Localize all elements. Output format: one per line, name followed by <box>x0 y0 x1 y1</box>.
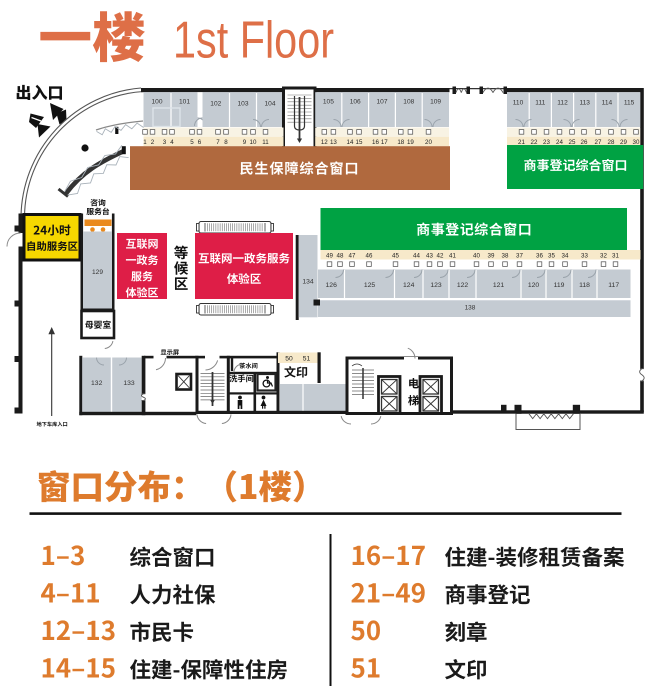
svg-text:110: 110 <box>513 100 524 107</box>
svg-text:14: 14 <box>347 139 354 146</box>
svg-text:19: 19 <box>407 139 414 146</box>
svg-text:108: 108 <box>403 99 414 106</box>
svg-text:109: 109 <box>430 99 441 106</box>
svg-text:13: 13 <box>330 139 337 146</box>
svg-text:107: 107 <box>376 99 387 106</box>
svg-text:36: 36 <box>536 253 543 260</box>
svg-text:138: 138 <box>465 305 476 312</box>
svg-text:40: 40 <box>473 253 480 260</box>
svg-text:4: 4 <box>170 139 174 146</box>
svg-text:114: 114 <box>602 100 613 107</box>
svg-text:10: 10 <box>250 139 257 146</box>
svg-text:5: 5 <box>190 139 194 146</box>
svg-text:32: 32 <box>600 253 607 260</box>
svg-text:120: 120 <box>528 282 540 289</box>
svg-text:20: 20 <box>425 139 432 146</box>
svg-text:132: 132 <box>91 380 103 387</box>
svg-text:43: 43 <box>426 253 433 260</box>
svg-text:129: 129 <box>92 269 103 276</box>
svg-text:100: 100 <box>151 99 162 106</box>
svg-text:33: 33 <box>581 253 588 260</box>
svg-text:15: 15 <box>356 139 363 146</box>
svg-text:118: 118 <box>579 282 590 289</box>
svg-text:125: 125 <box>364 282 376 289</box>
svg-text:1: 1 <box>143 139 147 146</box>
svg-text:134: 134 <box>302 279 314 286</box>
svg-text:101: 101 <box>179 99 190 106</box>
svg-text:9: 9 <box>243 139 247 146</box>
svg-text:41: 41 <box>449 253 456 260</box>
svg-text:7: 7 <box>216 139 220 146</box>
svg-text:6: 6 <box>198 139 202 146</box>
svg-text:51: 51 <box>303 356 311 363</box>
svg-text:115: 115 <box>624 100 635 107</box>
svg-text:124: 124 <box>403 282 415 289</box>
svg-text:105: 105 <box>323 99 334 106</box>
svg-text:111: 111 <box>535 100 545 107</box>
svg-text:39: 39 <box>488 253 495 260</box>
svg-text:119: 119 <box>554 282 565 289</box>
svg-text:34: 34 <box>562 253 569 260</box>
svg-text:126: 126 <box>326 282 338 289</box>
svg-text:117: 117 <box>608 282 619 289</box>
svg-text:35: 35 <box>548 253 555 260</box>
svg-text:18: 18 <box>397 139 404 146</box>
svg-text:17: 17 <box>381 139 388 146</box>
svg-text:2: 2 <box>151 139 155 146</box>
svg-text:3: 3 <box>163 139 167 146</box>
svg-text:48: 48 <box>337 253 344 260</box>
svg-text:8: 8 <box>224 139 228 146</box>
svg-text:46: 46 <box>366 253 373 260</box>
svg-text:49: 49 <box>326 253 333 260</box>
svg-text:38: 38 <box>502 253 509 260</box>
svg-text:113: 113 <box>579 100 590 107</box>
svg-text:121: 121 <box>493 282 505 289</box>
svg-text:37: 37 <box>516 253 523 260</box>
svg-text:133: 133 <box>123 380 135 387</box>
svg-text:106: 106 <box>350 99 361 106</box>
svg-text:103: 103 <box>237 101 248 108</box>
svg-text:11: 11 <box>262 139 269 146</box>
svg-text:31: 31 <box>612 253 619 260</box>
svg-text:104: 104 <box>264 101 275 108</box>
svg-text:45: 45 <box>392 253 399 260</box>
svg-text:102: 102 <box>210 101 221 108</box>
svg-text:47: 47 <box>349 253 356 260</box>
svg-text:122: 122 <box>457 282 469 289</box>
svg-text:50: 50 <box>285 356 293 363</box>
svg-text:123: 123 <box>430 282 442 289</box>
svg-text:1st Floor: 1st Floor <box>173 12 334 70</box>
svg-text:42: 42 <box>437 253 444 260</box>
svg-text:112: 112 <box>557 100 568 107</box>
svg-text:12: 12 <box>321 139 328 146</box>
svg-text:16: 16 <box>372 139 379 146</box>
svg-text:44: 44 <box>413 253 420 260</box>
